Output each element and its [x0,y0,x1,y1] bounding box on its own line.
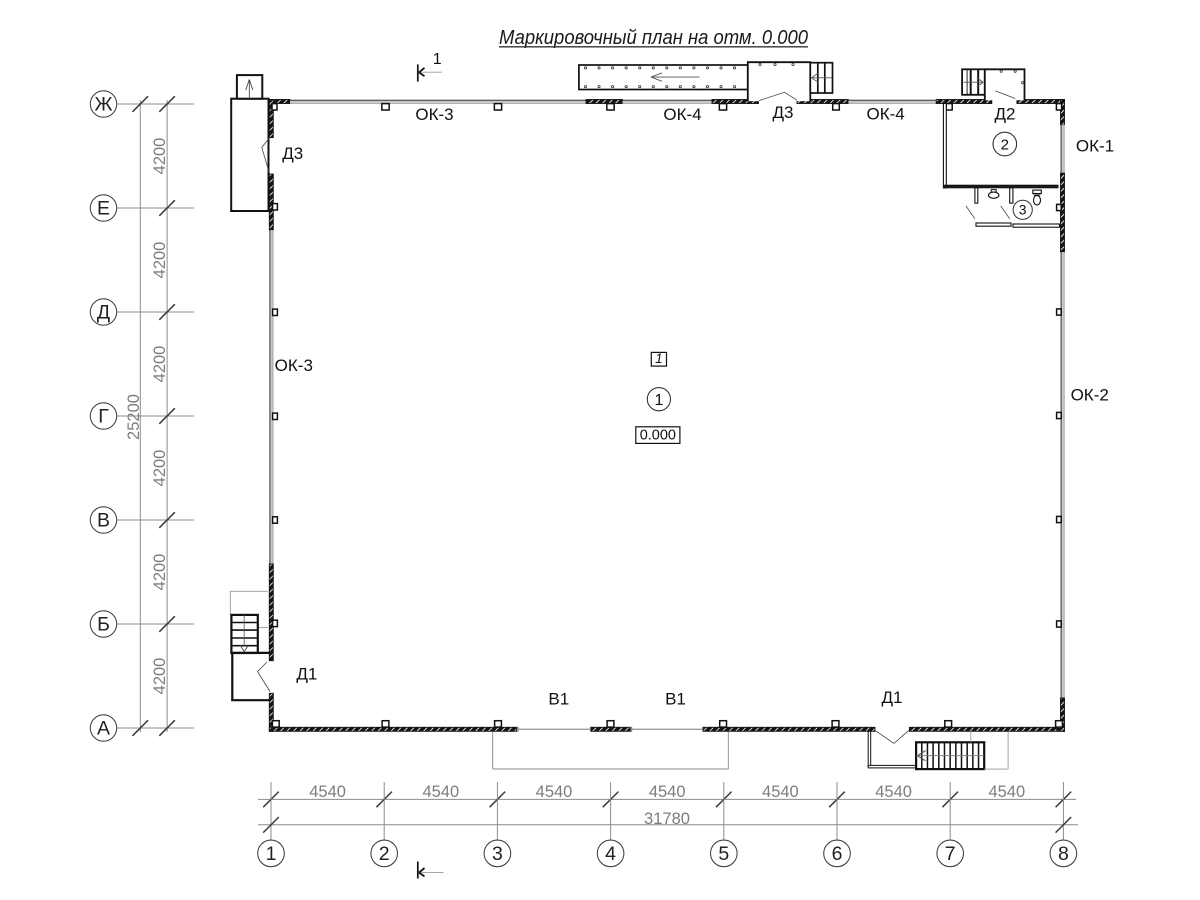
svg-text:ОК-2: ОК-2 [1071,386,1109,405]
svg-text:2: 2 [1001,136,1009,153]
svg-text:Д: Д [97,302,110,324]
svg-text:4540: 4540 [762,783,799,801]
svg-text:Г: Г [98,406,109,428]
svg-text:3: 3 [492,843,503,865]
svg-text:Е: Е [97,198,110,220]
svg-text:1: 1 [433,51,442,68]
svg-text:3: 3 [1019,202,1027,218]
svg-text:ОК-1: ОК-1 [1076,137,1114,156]
svg-text:4200: 4200 [151,346,169,383]
svg-text:4540: 4540 [649,783,686,801]
svg-text:А: А [97,718,110,740]
svg-text:Д3: Д3 [282,144,303,163]
svg-text:8: 8 [1058,843,1069,865]
svg-text:1: 1 [266,843,277,865]
svg-text:Д2: Д2 [995,105,1016,124]
svg-text:6: 6 [832,843,843,865]
svg-text:Ж: Ж [94,94,112,116]
svg-text:4540: 4540 [988,783,1025,801]
svg-text:Б: Б [97,614,110,636]
svg-text:4540: 4540 [536,783,573,801]
svg-text:В1: В1 [548,689,569,708]
svg-text:ОК-3: ОК-3 [415,105,453,124]
svg-text:0.000: 0.000 [640,428,676,444]
svg-text:4200: 4200 [151,242,169,279]
svg-text:4200: 4200 [151,450,169,487]
svg-text:1: 1 [654,392,663,409]
svg-text:1: 1 [655,351,663,366]
svg-text:Д1: Д1 [882,688,903,707]
svg-text:4540: 4540 [875,783,912,801]
svg-text:4540: 4540 [309,783,346,801]
svg-text:25200: 25200 [125,394,143,440]
svg-text:Маркировочный план на отм. 0.0: Маркировочный план на отм. 0.000 [499,27,808,49]
svg-text:7: 7 [945,843,956,865]
svg-text:ОК-3: ОК-3 [275,356,313,375]
svg-text:Д3: Д3 [773,103,794,122]
svg-text:4: 4 [605,843,616,865]
svg-text:В1: В1 [665,689,686,708]
svg-text:4200: 4200 [151,658,169,695]
svg-text:ОК-4: ОК-4 [663,105,701,124]
svg-text:В: В [97,510,110,532]
svg-text:Д1: Д1 [296,665,317,684]
svg-text:ОК-4: ОК-4 [866,105,904,124]
svg-text:4540: 4540 [422,783,459,801]
svg-text:2: 2 [379,843,390,865]
svg-text:31780: 31780 [644,810,690,828]
svg-text:4200: 4200 [151,554,169,591]
svg-text:4200: 4200 [151,138,169,175]
svg-text:5: 5 [718,843,729,865]
